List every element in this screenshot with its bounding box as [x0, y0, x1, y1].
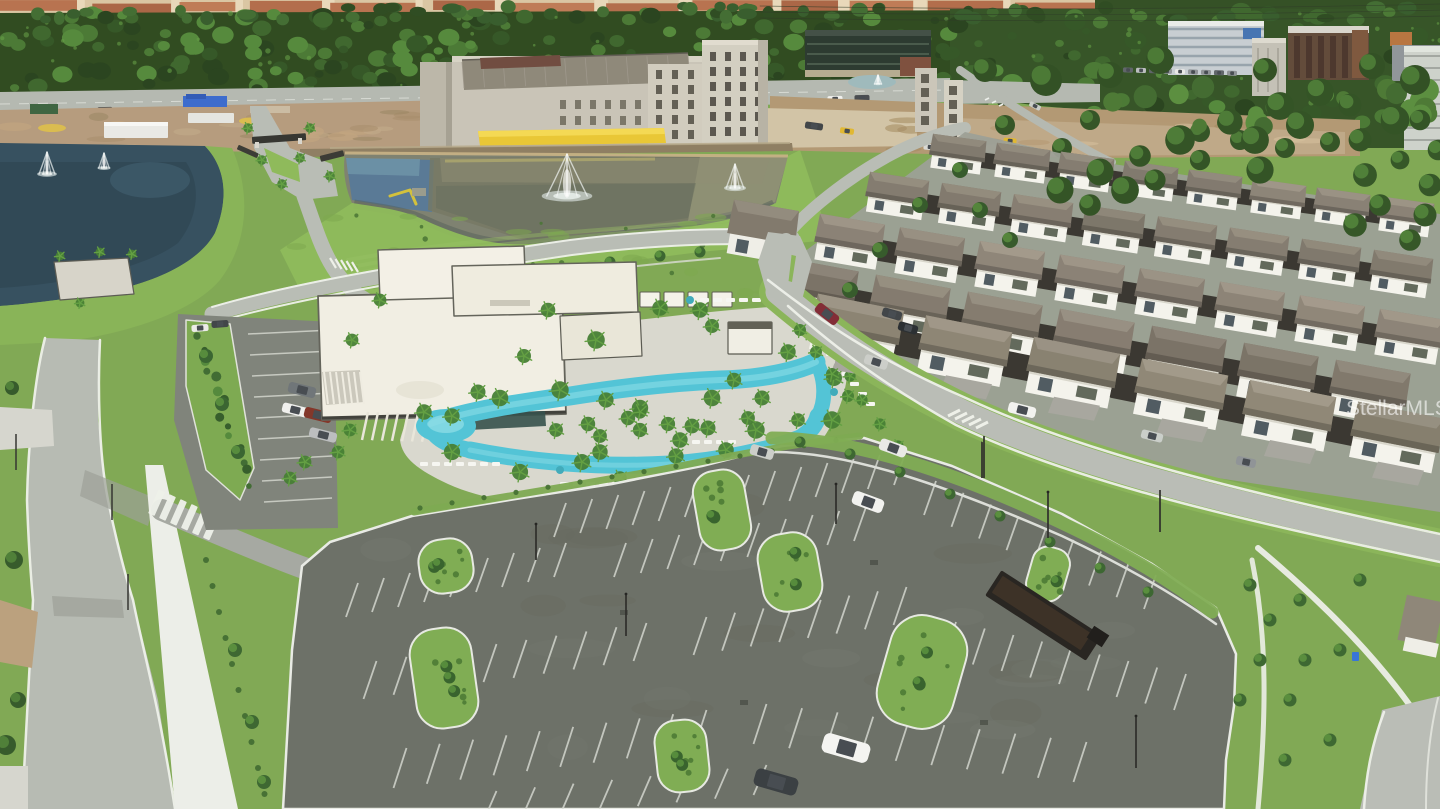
svg-text:StellarMLS: StellarMLS [1346, 397, 1440, 420]
